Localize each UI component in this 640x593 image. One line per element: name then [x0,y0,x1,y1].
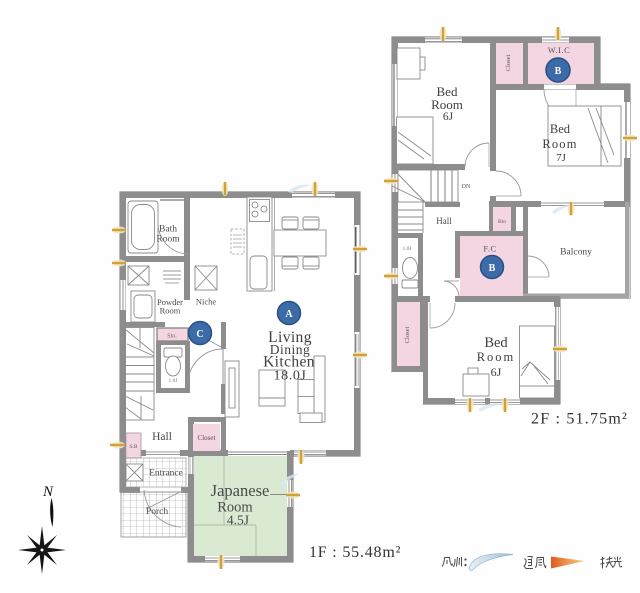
svg-text:Room: Room [431,97,463,112]
svg-text:S.B: S.B [129,444,137,450]
svg-text:Sto.: Sto. [167,334,177,340]
svg-text:Niche: Niche [196,297,217,307]
svg-text:Room: Room [542,137,577,151]
svg-text:Japanese: Japanese [211,481,270,500]
svg-text:4.5J: 4.5J [227,513,249,528]
svg-text:B: B [489,263,496,274]
svg-text:6J: 6J [443,111,454,123]
svg-text:C: C [196,329,203,340]
svg-text:Room: Room [156,235,180,245]
svg-text:18.0J: 18.0J [274,369,307,384]
svg-text:Closet: Closet [198,434,216,442]
svg-text:Blo: Blo [498,219,506,225]
svg-text:Balcony: Balcony [560,248,592,258]
svg-text:DN: DN [462,184,471,190]
svg-text:Porch: Porch [146,507,168,517]
svg-text:Entrance: Entrance [149,469,183,479]
svg-text:B: B [555,66,562,77]
svg-text:Closet: Closet [404,327,411,344]
svg-text:Hall: Hall [152,431,172,443]
svg-text:1F : 55.48m²: 1F : 55.48m² [309,544,401,561]
svg-text:N: N [42,484,54,500]
svg-text:Room: Room [477,350,516,364]
svg-text:1.0J: 1.0J [402,246,412,252]
svg-text:Closet: Closet [505,55,512,72]
svg-text:2F : 51.75m²: 2F : 51.75m² [531,411,628,428]
svg-text:7J: 7J [556,152,567,164]
svg-text:6J: 6J [491,365,502,379]
svg-text:W.I.C: W.I.C [548,45,571,55]
svg-text:Bed: Bed [550,122,571,136]
svg-text:Room: Room [160,306,181,316]
svg-text:F.C: F.C [483,244,496,254]
svg-text:Hall: Hall [436,216,452,226]
svg-text:Bath: Bath [159,225,177,235]
svg-text:A: A [285,309,293,320]
svg-text:1.0J: 1.0J [168,378,178,384]
svg-text:Bed: Bed [484,335,508,351]
